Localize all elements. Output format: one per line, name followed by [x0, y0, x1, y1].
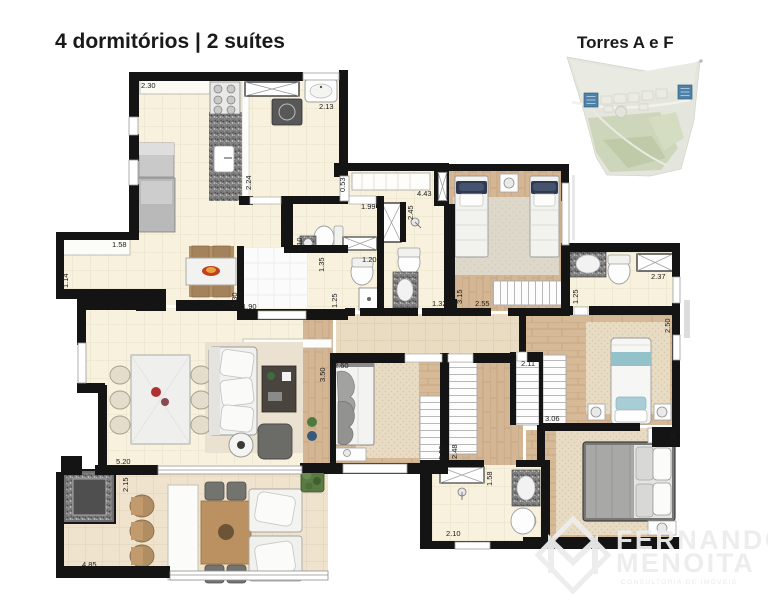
svg-text:1.14: 1.14 — [61, 273, 70, 288]
svg-text:1.32: 1.32 — [432, 299, 447, 308]
svg-text:3.06: 3.06 — [545, 414, 560, 423]
svg-text:1.58: 1.58 — [112, 240, 127, 249]
svg-text:2.55: 2.55 — [475, 299, 490, 308]
svg-text:5.20: 5.20 — [116, 457, 131, 466]
svg-text:MENOITA: MENOITA — [616, 548, 755, 578]
svg-text:5.30: 5.30 — [230, 292, 239, 307]
svg-text:2.60: 2.60 — [334, 361, 349, 370]
svg-text:2.45: 2.45 — [406, 205, 415, 220]
svg-text:CONSULTORIA DE IMÓVEIS: CONSULTORIA DE IMÓVEIS — [621, 577, 738, 586]
svg-text:1.25: 1.25 — [330, 293, 339, 308]
svg-text:3.50: 3.50 — [318, 367, 327, 382]
svg-text:1.99: 1.99 — [361, 202, 376, 211]
svg-text:4.43: 4.43 — [417, 189, 432, 198]
svg-text:2.13: 2.13 — [319, 102, 334, 111]
svg-text:2.60: 2.60 — [669, 430, 678, 445]
svg-text:1.35: 1.35 — [317, 257, 326, 272]
svg-text:Torres A e F: Torres A e F — [577, 33, 674, 52]
svg-text:2.30: 2.30 — [141, 81, 156, 90]
svg-text:1.90: 1.90 — [242, 302, 257, 311]
svg-text:2.15: 2.15 — [121, 477, 130, 492]
svg-text:2.24: 2.24 — [244, 175, 253, 190]
svg-text:1.10: 1.10 — [295, 237, 304, 252]
svg-text:2.50: 2.50 — [437, 445, 446, 460]
svg-text:0.53: 0.53 — [338, 177, 347, 192]
svg-text:2.50: 2.50 — [663, 318, 672, 333]
svg-text:2.48: 2.48 — [450, 444, 459, 459]
svg-text:4.85: 4.85 — [82, 560, 97, 569]
svg-text:1.25: 1.25 — [571, 289, 580, 304]
svg-text:2.10: 2.10 — [446, 529, 461, 538]
svg-text:2.11: 2.11 — [521, 359, 535, 368]
svg-text:3.15: 3.15 — [455, 289, 464, 304]
svg-text:4 dormitórios | 2 suítes: 4 dormitórios | 2 suítes — [55, 30, 285, 53]
svg-text:1.20: 1.20 — [362, 255, 377, 264]
svg-text:2.37: 2.37 — [651, 272, 666, 281]
svg-text:1.58: 1.58 — [485, 471, 494, 486]
